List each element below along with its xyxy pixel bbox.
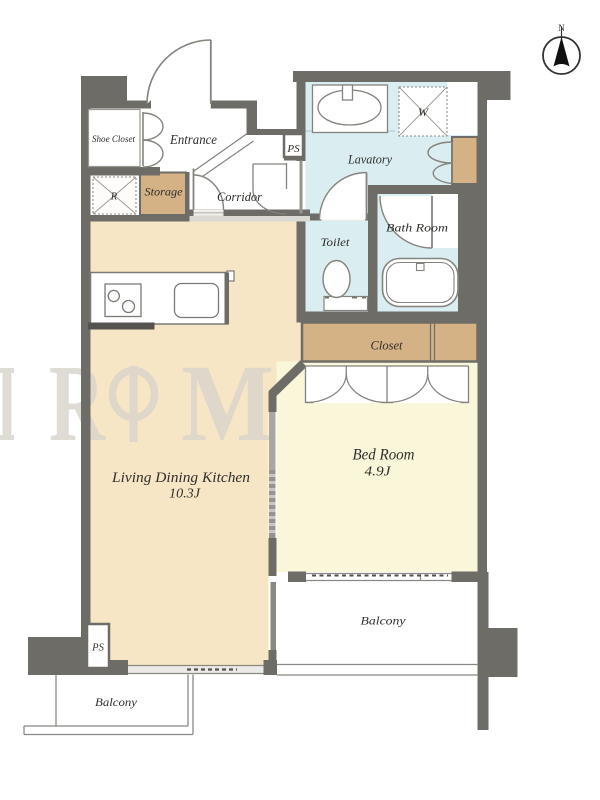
svg-text:Bath Room: Bath Room <box>386 221 448 235</box>
svg-text:W: W <box>418 105 429 119</box>
svg-text:4.9J: 4.9J <box>365 465 392 480</box>
svg-text:Balcony: Balcony <box>361 614 407 628</box>
svg-text:Entrance: Entrance <box>169 132 217 147</box>
svg-text:Balcony: Balcony <box>95 697 138 709</box>
svg-text:R: R <box>49 342 106 464</box>
svg-text:N: N <box>558 23 565 33</box>
svg-text:Corridor: Corridor <box>217 189 263 204</box>
svg-text:PS: PS <box>91 643 104 654</box>
svg-text:Toilet: Toilet <box>321 235 351 249</box>
svg-text:R: R <box>110 192 118 203</box>
svg-text:Closet: Closet <box>371 339 404 353</box>
svg-text:M: M <box>181 342 274 464</box>
svg-text:Lavatory: Lavatory <box>347 152 392 167</box>
svg-text:Shoe Closet: Shoe Closet <box>92 135 135 145</box>
svg-text:10.3J: 10.3J <box>169 486 201 501</box>
svg-text:Storage: Storage <box>145 187 183 199</box>
svg-text:Bed Room: Bed Room <box>353 447 415 464</box>
svg-text:Living Dining Kitchen: Living Dining Kitchen <box>111 470 250 486</box>
svg-text:PS: PS <box>286 143 300 155</box>
